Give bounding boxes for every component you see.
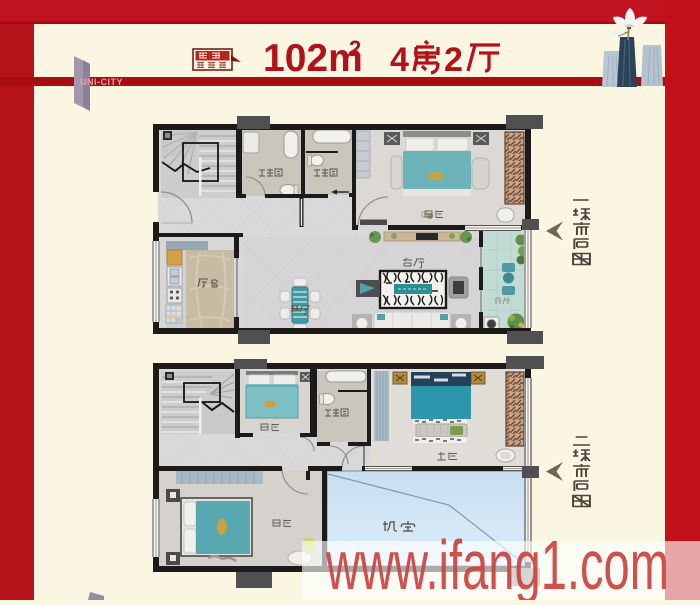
svg-text:2: 2 <box>444 41 463 79</box>
svg-text:2: 2 <box>349 36 361 61</box>
svg-text:UNI-CITY: UNI-CITY <box>80 77 123 87</box>
svg-text:www.ifang1.com: www.ifang1.com <box>325 526 669 600</box>
svg-text:4: 4 <box>390 41 409 79</box>
svg-text:102m: 102m <box>263 37 363 80</box>
